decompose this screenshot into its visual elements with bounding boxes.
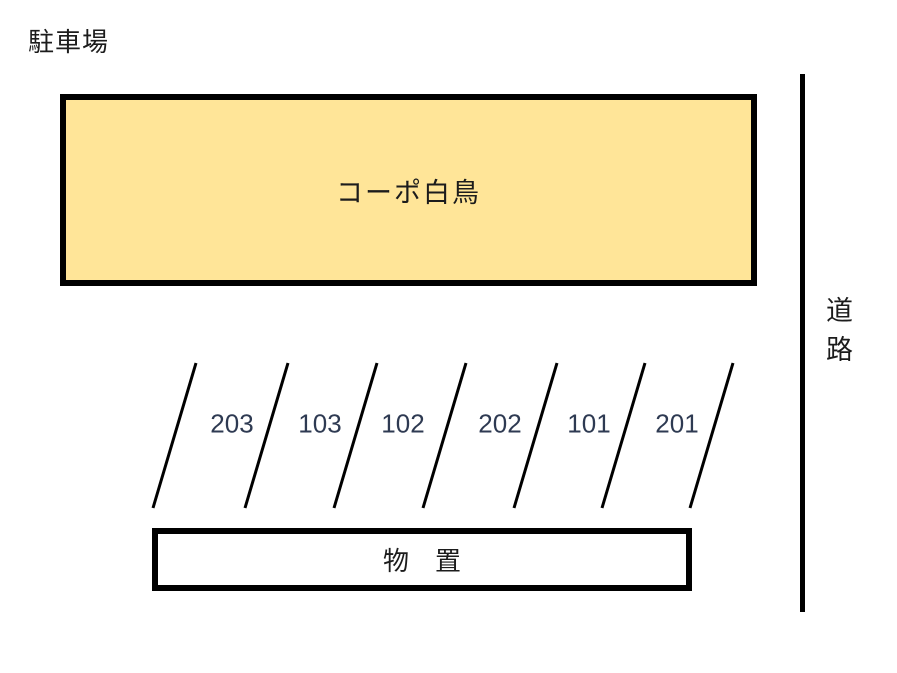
stall-divider-line xyxy=(153,363,196,508)
storage-label: 物 置 xyxy=(383,541,461,578)
building-box: コーポ白鳥 xyxy=(60,94,757,286)
stall-divider-line xyxy=(423,363,466,508)
parking-space-label: 103 xyxy=(298,409,341,440)
building-label: コーポ白鳥 xyxy=(336,171,481,210)
parking-space-label: 203 xyxy=(210,409,253,440)
parking-space-label: 102 xyxy=(381,409,424,440)
parking-space-label: 201 xyxy=(655,409,698,440)
diagram-title: 駐車場 xyxy=(28,22,109,59)
parking-space-label: 101 xyxy=(567,409,610,440)
parking-lot-diagram: 駐車場 コーポ白鳥 203 103 102 202 101 201 物 置 道路 xyxy=(0,0,897,673)
road-boundary-line xyxy=(800,74,805,612)
parking-space-label: 202 xyxy=(478,409,521,440)
road-label: 道路 xyxy=(818,296,857,374)
storage-box: 物 置 xyxy=(152,528,692,591)
